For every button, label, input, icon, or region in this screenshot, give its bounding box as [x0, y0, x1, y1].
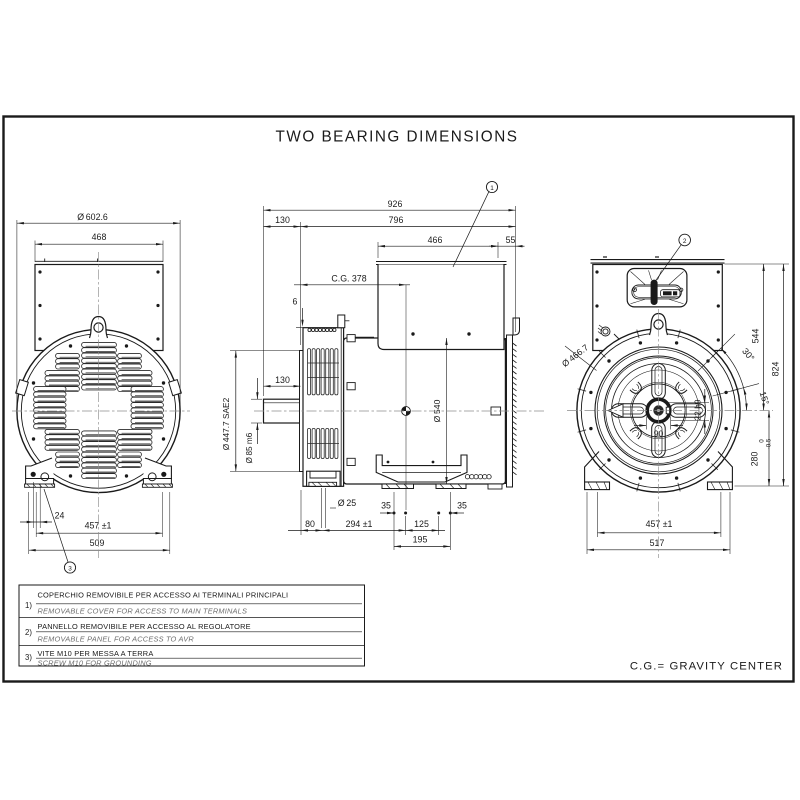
svg-text:457 ±1: 457 ±1 [646, 519, 673, 529]
svg-text:544: 544 [751, 329, 761, 344]
svg-text:COPERCHIO REMOVIBILE PER ACCES: COPERCHIO REMOVIBILE PER ACCESSO AI TERM… [38, 591, 289, 600]
svg-text:1): 1) [25, 601, 32, 610]
svg-text:466: 466 [428, 235, 443, 245]
svg-text:457 ±1: 457 ±1 [85, 521, 112, 531]
svg-text:2: 2 [683, 238, 687, 245]
svg-text:130: 130 [275, 215, 290, 225]
svg-text:0: 0 [759, 439, 766, 443]
svg-text:125: 125 [414, 519, 429, 529]
svg-text:195: 195 [413, 535, 428, 545]
svg-text:VITE M10 PER MESSA A TERRA: VITE M10 PER MESSA A TERRA [38, 649, 154, 658]
svg-text:Ø 25: Ø 25 [338, 498, 356, 508]
svg-text:468: 468 [92, 232, 107, 242]
svg-text:2): 2) [25, 628, 32, 637]
svg-text:926: 926 [388, 199, 403, 209]
svg-text:35: 35 [381, 501, 391, 511]
svg-text:22 h9: 22 h9 [693, 399, 703, 420]
svg-text:3): 3) [25, 653, 32, 662]
svg-text:517: 517 [650, 538, 665, 548]
svg-text:Ø 85 m6: Ø 85 m6 [245, 432, 254, 463]
svg-text:6: 6 [293, 297, 298, 307]
svg-text:35: 35 [457, 501, 467, 511]
svg-text:509: 509 [90, 538, 105, 548]
svg-text:1: 1 [490, 185, 494, 192]
svg-text:130: 130 [275, 375, 290, 385]
svg-text:C.G. 378: C.G. 378 [331, 274, 366, 284]
svg-text:80: 80 [305, 519, 315, 529]
svg-text:PANNELLO REMOVIBILE PER ACCESS: PANNELLO REMOVIBILE PER ACCESSO AL REGOL… [38, 622, 251, 631]
svg-text:TWO BEARING DIMENSIONS: TWO BEARING DIMENSIONS [276, 129, 519, 146]
svg-text:Ø 602.6: Ø 602.6 [77, 212, 108, 222]
svg-text:C.G.= GRAVITY CENTER: C.G.= GRAVITY CENTER [630, 661, 783, 673]
svg-text:796: 796 [389, 215, 404, 225]
svg-text:24: 24 [55, 511, 65, 521]
svg-text:3: 3 [68, 565, 72, 572]
svg-text:294 ±1: 294 ±1 [346, 519, 373, 529]
svg-text:280: 280 [750, 452, 760, 467]
svg-text:824: 824 [771, 362, 781, 377]
svg-text:REMOVABLE PANEL FOR ACCESS TO: REMOVABLE PANEL FOR ACCESS TO AVR [38, 635, 195, 644]
svg-text:REMOVABLE COVER FOR ACCESS TO: REMOVABLE COVER FOR ACCESS TO MAIN TERMI… [38, 607, 248, 616]
svg-text:Ø 447.7 SAE2: Ø 447.7 SAE2 [221, 397, 231, 450]
svg-text:SCREW M10 FOR GROUNDING: SCREW M10 FOR GROUNDING [38, 658, 152, 667]
svg-text:-0.5: -0.5 [766, 438, 773, 449]
svg-text:55: 55 [506, 235, 516, 245]
